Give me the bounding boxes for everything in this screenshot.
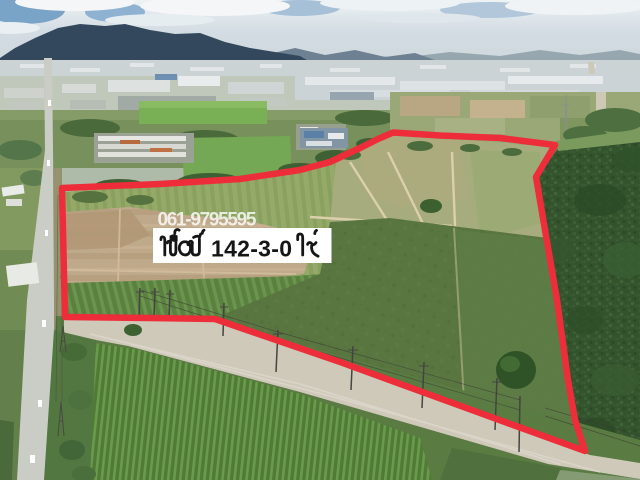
svg-text:142-3-0: 142-3-0 (211, 236, 292, 262)
svg-text:061-9795595: 061-9795595 (158, 210, 257, 231)
